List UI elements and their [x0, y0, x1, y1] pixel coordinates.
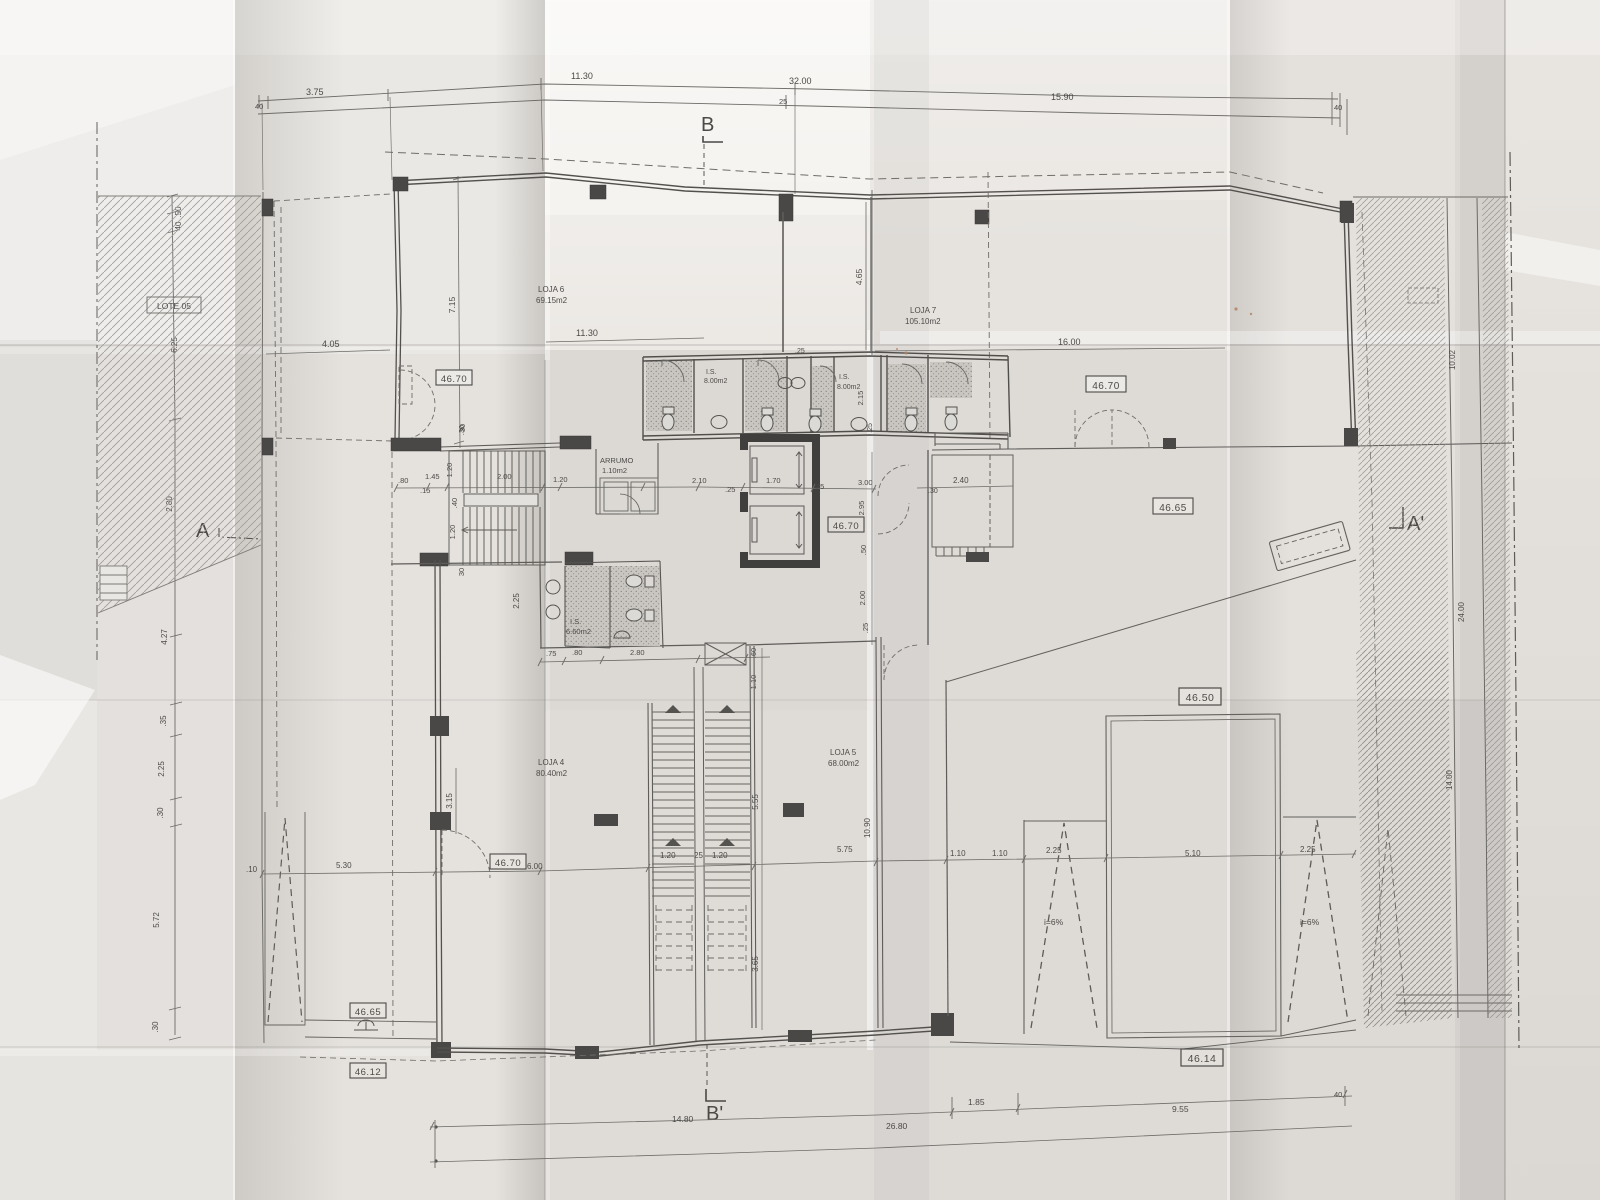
svg-text:3.15: 3.15: [445, 793, 454, 809]
svg-text:I.S.: I.S.: [706, 369, 717, 376]
svg-text:2.40: 2.40: [953, 476, 969, 485]
svg-text:80.40m2: 80.40m2: [536, 769, 568, 778]
svg-text:I.S.: I.S.: [839, 374, 850, 381]
svg-text:I.S.: I.S.: [570, 617, 581, 626]
svg-text:.30: .30: [928, 488, 938, 495]
svg-text:30: 30: [458, 424, 467, 432]
svg-text:68.00m2: 68.00m2: [828, 759, 860, 768]
svg-text:46.65: 46.65: [355, 1007, 381, 1018]
svg-text:.30: .30: [156, 807, 165, 819]
svg-text:.25: .25: [725, 485, 735, 494]
svg-text:.80: .80: [572, 648, 582, 657]
svg-text:.40: .40: [450, 498, 459, 508]
svg-text:40: 40: [1334, 103, 1342, 112]
svg-text:1.10: 1.10: [950, 849, 966, 858]
svg-text:1.20: 1.20: [448, 525, 457, 540]
svg-text:1.45: 1.45: [425, 472, 440, 481]
svg-text:1.85: 1.85: [968, 1097, 985, 1107]
svg-text:4.05: 4.05: [322, 339, 340, 349]
svg-text:32.00: 32.00: [789, 76, 812, 86]
svg-text:5.30: 5.30: [336, 861, 352, 870]
svg-text:2.95: 2.95: [857, 501, 866, 516]
svg-text:.50: .50: [859, 545, 868, 555]
svg-text:2.00: 2.00: [858, 591, 867, 606]
svg-text:2.00: 2.00: [497, 472, 512, 481]
svg-text:1.70: 1.70: [766, 476, 781, 485]
svg-text:30: 30: [457, 568, 466, 576]
svg-text:24.00: 24.00: [1457, 601, 1466, 622]
svg-text:5.55: 5.55: [751, 794, 760, 810]
svg-text:.30: .30: [151, 1021, 160, 1033]
svg-text:3.00: 3.00: [858, 478, 873, 487]
svg-text:.25: .25: [867, 423, 874, 433]
svg-text:4.65: 4.65: [854, 268, 864, 285]
svg-text:1.10m2: 1.10m2: [602, 466, 627, 475]
svg-text:46.12: 46.12: [355, 1067, 381, 1078]
svg-text:11.30: 11.30: [571, 71, 593, 81]
svg-text:25: 25: [816, 482, 824, 491]
svg-text:2.80: 2.80: [630, 648, 645, 657]
svg-text:69.15m2: 69.15m2: [536, 296, 568, 305]
svg-text:10.02: 10.02: [1448, 349, 1457, 370]
svg-text:2.15: 2.15: [856, 391, 865, 406]
svg-text:46.14: 46.14: [1188, 1053, 1217, 1065]
svg-text:40: 40: [255, 102, 263, 111]
svg-text:11.30: 11.30: [576, 328, 598, 338]
svg-text:.25: .25: [795, 348, 805, 355]
svg-text:1.20: 1.20: [553, 475, 568, 484]
svg-text:1.20: 1.20: [712, 851, 728, 860]
svg-text:9.55: 9.55: [1172, 1104, 1189, 1114]
svg-text:46.70: 46.70: [833, 521, 859, 532]
svg-text:i=6%: i=6%: [1300, 917, 1320, 927]
svg-text:B': B': [706, 1103, 723, 1125]
svg-text:.25: .25: [861, 623, 870, 633]
svg-text:16.00: 16.00: [1058, 337, 1081, 347]
svg-text:5.72: 5.72: [152, 912, 161, 928]
svg-text:1.20: 1.20: [660, 851, 676, 860]
svg-text:.15: .15: [420, 486, 430, 495]
svg-text:LOJA 4: LOJA 4: [538, 758, 565, 767]
svg-text:4.27: 4.27: [160, 629, 169, 645]
svg-text:46.70: 46.70: [495, 858, 521, 869]
svg-text:2.25: 2.25: [512, 593, 521, 609]
svg-text:46.70: 46.70: [441, 374, 467, 385]
svg-text:40: 40: [1334, 1090, 1342, 1099]
svg-text:8.00m2: 8.00m2: [837, 384, 860, 391]
svg-text:1.10: 1.10: [992, 849, 1008, 858]
svg-text:46.70: 46.70: [1092, 381, 1120, 392]
svg-text:2.25: 2.25: [157, 761, 166, 777]
svg-text:2.10: 2.10: [692, 476, 707, 485]
svg-text:46.65: 46.65: [1159, 503, 1187, 514]
svg-text:14.00: 14.00: [1445, 769, 1454, 790]
svg-text:3.65: 3.65: [751, 956, 760, 972]
svg-text:LOTE 05: LOTE 05: [157, 301, 191, 311]
svg-text:105.10m2: 105.10m2: [905, 317, 941, 326]
svg-text:1.20: 1.20: [445, 463, 454, 478]
svg-text:46.50: 46.50: [1186, 692, 1215, 704]
svg-text:.35: .35: [159, 715, 168, 727]
svg-text:6.60m2: 6.60m2: [566, 627, 591, 636]
svg-text:.80: .80: [398, 476, 408, 485]
svg-text:6.00: 6.00: [527, 862, 543, 871]
svg-text:8.00m2: 8.00m2: [704, 378, 727, 385]
svg-text:.10: .10: [246, 865, 258, 874]
svg-text:B: B: [701, 114, 714, 136]
svg-text:LOJA 7: LOJA 7: [910, 306, 937, 315]
svg-text:5.10: 5.10: [1185, 849, 1201, 858]
svg-text:i=6%: i=6%: [1044, 917, 1064, 927]
svg-text:15.90: 15.90: [1051, 92, 1074, 102]
svg-text:.75: .75: [546, 649, 556, 658]
svg-text:14.80: 14.80: [672, 1114, 694, 1124]
svg-text:3.75: 3.75: [306, 87, 324, 97]
svg-text:2.25: 2.25: [1046, 846, 1062, 855]
svg-text:LOJA 6: LOJA 6: [538, 285, 565, 294]
svg-text:25: 25: [779, 97, 787, 106]
svg-text:LOJA 5: LOJA 5: [830, 748, 857, 757]
svg-text:5.75: 5.75: [837, 845, 853, 854]
svg-text:25: 25: [694, 851, 703, 860]
svg-text:26.80: 26.80: [886, 1121, 908, 1131]
svg-text:7.15: 7.15: [447, 296, 457, 313]
svg-text:10.90: 10.90: [863, 817, 872, 838]
svg-text:ARRUMO: ARRUMO: [600, 456, 633, 465]
svg-text:2.25: 2.25: [1300, 845, 1316, 854]
